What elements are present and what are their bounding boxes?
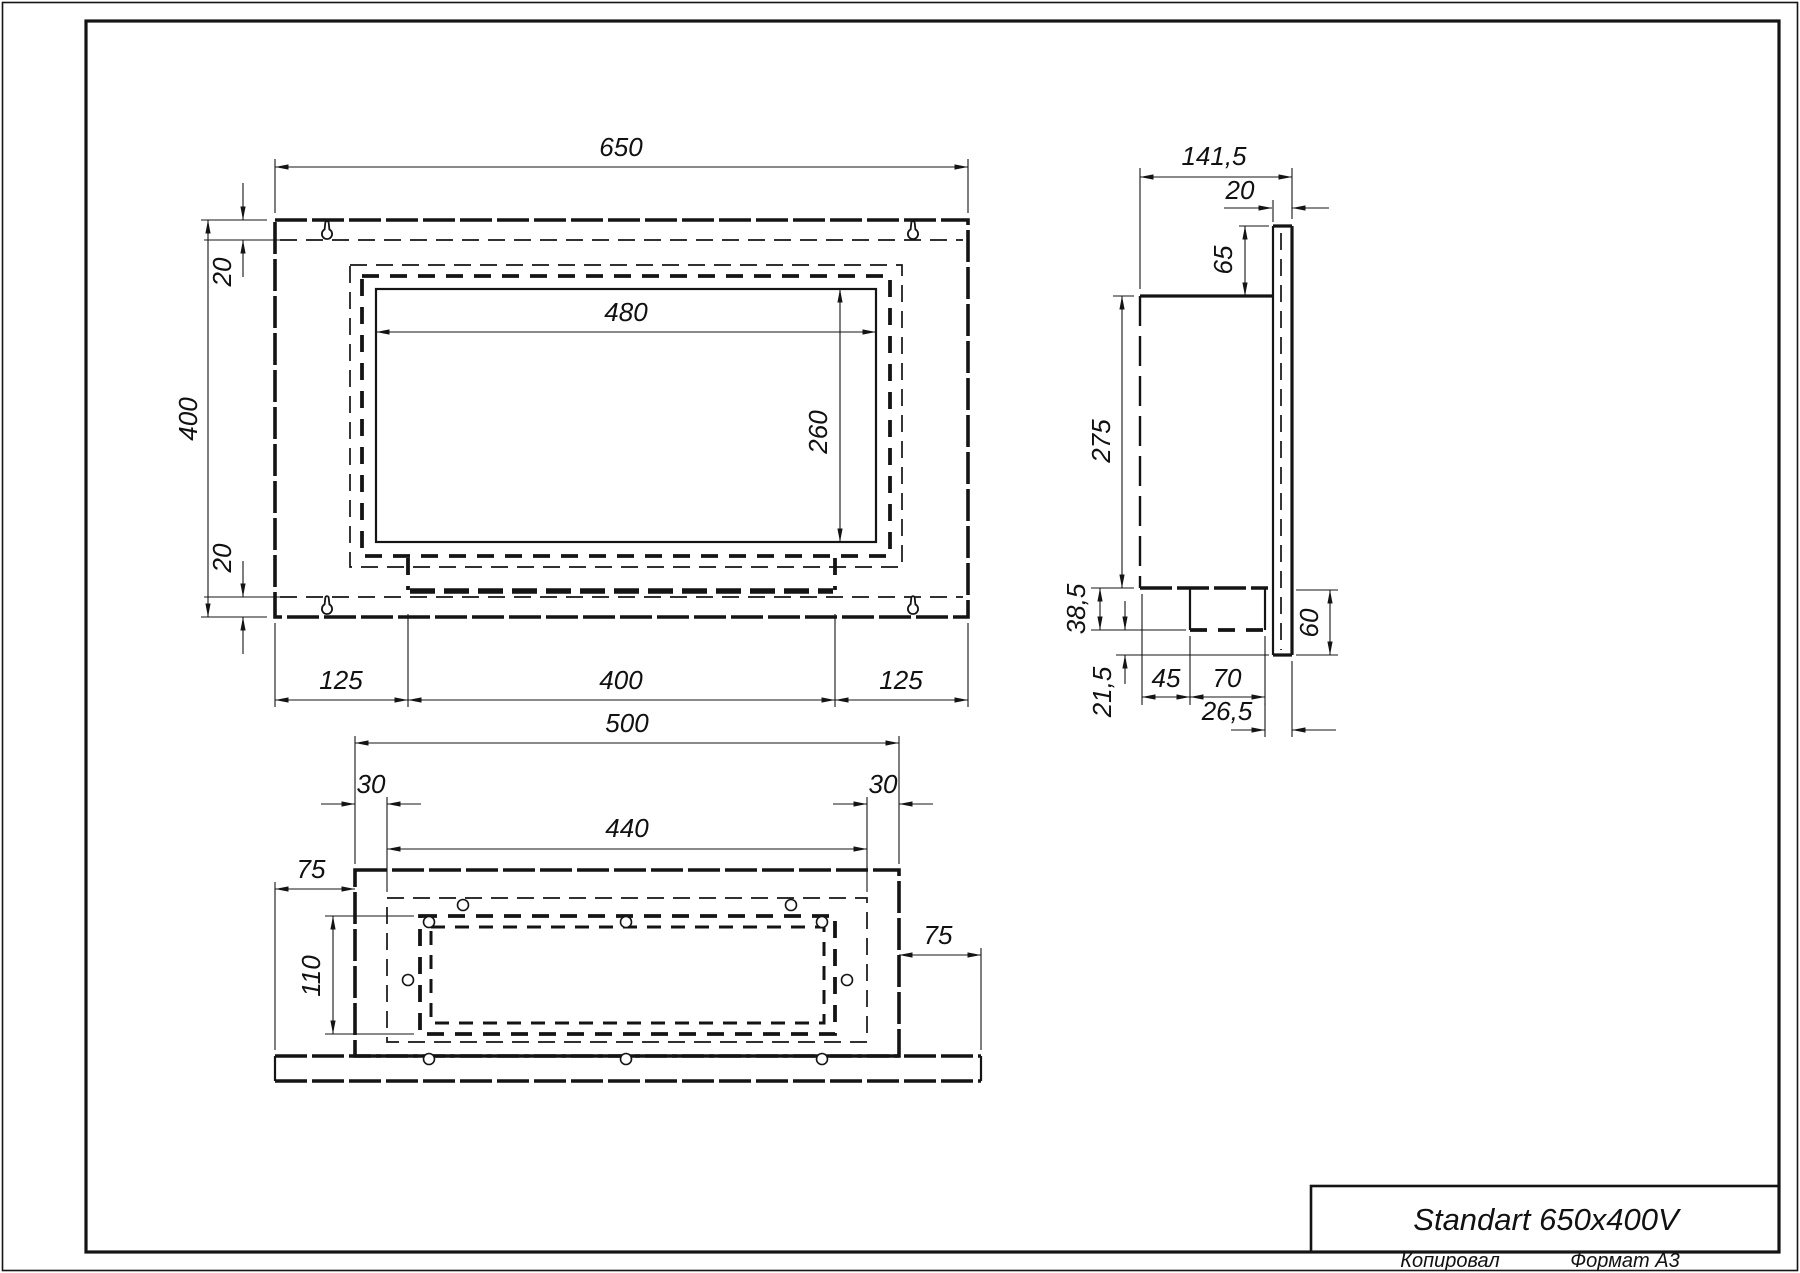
footer-format-label: Формат А3 xyxy=(1570,1250,1679,1272)
dim-label: 26,5 xyxy=(1201,696,1253,726)
keyhole-slot-icon xyxy=(322,221,332,239)
dim-label: 45 xyxy=(1152,663,1181,693)
dim-label: 650 xyxy=(599,132,643,162)
title-block: Standart 650x400V xyxy=(1311,1186,1779,1252)
dim-front-top-inset: 20 xyxy=(204,183,280,287)
dim-side-flange-thickness: 20 xyxy=(1224,175,1329,222)
dim-side-body-height: 275 xyxy=(1086,296,1134,588)
dim-bottom-inner-width: 440 xyxy=(387,813,867,849)
dim-bottom-overhang-left: 75 xyxy=(275,854,355,1050)
dim-label: 500 xyxy=(605,708,649,738)
dim-label: 20 xyxy=(1225,175,1255,205)
front-view: 650 400 20 20 480 260 xyxy=(173,132,968,707)
dim-label: 38,5 xyxy=(1061,583,1091,634)
keyhole-slot-icon xyxy=(908,596,918,614)
dim-label: 400 xyxy=(173,397,203,441)
dim-label: 141,5 xyxy=(1181,141,1247,171)
dim-label: 260 xyxy=(803,410,833,455)
dim-label: 125 xyxy=(319,665,363,695)
side-view: 141,5 20 65 275 38,5 2 xyxy=(1061,141,1338,737)
bottom-view: 500 30 30 440 75 110 xyxy=(275,708,981,1081)
dim-front-opening-width: 480 xyxy=(376,297,876,332)
dim-label: 400 xyxy=(599,665,643,695)
drawing-sheet: 650 400 20 20 480 260 xyxy=(0,0,1800,1273)
page-frame xyxy=(3,3,1798,1271)
dim-label: 75 xyxy=(924,920,953,950)
dim-bottom-inset-right: 30 xyxy=(833,769,933,892)
dim-label: 20 xyxy=(207,543,237,573)
drawing-frame xyxy=(86,21,1779,1252)
mounting-holes xyxy=(403,900,853,1065)
dim-label: 440 xyxy=(605,813,649,843)
dim-label: 275 xyxy=(1086,419,1116,464)
dim-label: 480 xyxy=(604,297,648,327)
footer-copied-label: Копировал xyxy=(1400,1250,1499,1272)
dim-label: 21,5 xyxy=(1087,666,1117,718)
dim-label: 65 xyxy=(1208,245,1238,274)
paper-cut-border xyxy=(3,3,1798,1271)
dim-label: 75 xyxy=(297,854,326,884)
dim-front-opening-height: 260 xyxy=(803,289,840,542)
dim-label: 60 xyxy=(1294,608,1324,637)
dim-label: 20 xyxy=(207,257,237,287)
dim-side-flange-top: 65 xyxy=(1208,226,1269,296)
dim-label: 30 xyxy=(357,769,386,799)
bottom-opening-frame-inner xyxy=(431,927,824,1023)
keyhole-slot-icon xyxy=(322,596,332,614)
dim-side-flange-bottom: 60 xyxy=(1294,590,1338,655)
dim-front-bottom-margins: 125 400 125 xyxy=(275,614,968,707)
dim-label: 70 xyxy=(1213,663,1242,693)
dim-label: 30 xyxy=(869,769,898,799)
dim-side-45-70: 45 70 xyxy=(1142,594,1265,705)
drawing-title: Standart 650x400V xyxy=(1413,1202,1682,1237)
bottom-opening-frame xyxy=(420,916,835,1034)
dim-bottom-inset-left: 30 xyxy=(321,769,421,892)
keyhole-slot-icon xyxy=(908,221,918,239)
dim-label: 110 xyxy=(296,955,326,997)
dim-bottom-overhang-right: 75 xyxy=(899,920,981,1050)
dim-front-bottom-inset: 20 xyxy=(204,543,280,654)
drawing-canvas: 650 400 20 20 480 260 xyxy=(0,0,1800,1273)
dim-front-overall-width: 650 xyxy=(275,132,968,213)
dim-label: 125 xyxy=(879,665,923,695)
dim-side-step-38-5: 38,5 xyxy=(1061,583,1186,634)
